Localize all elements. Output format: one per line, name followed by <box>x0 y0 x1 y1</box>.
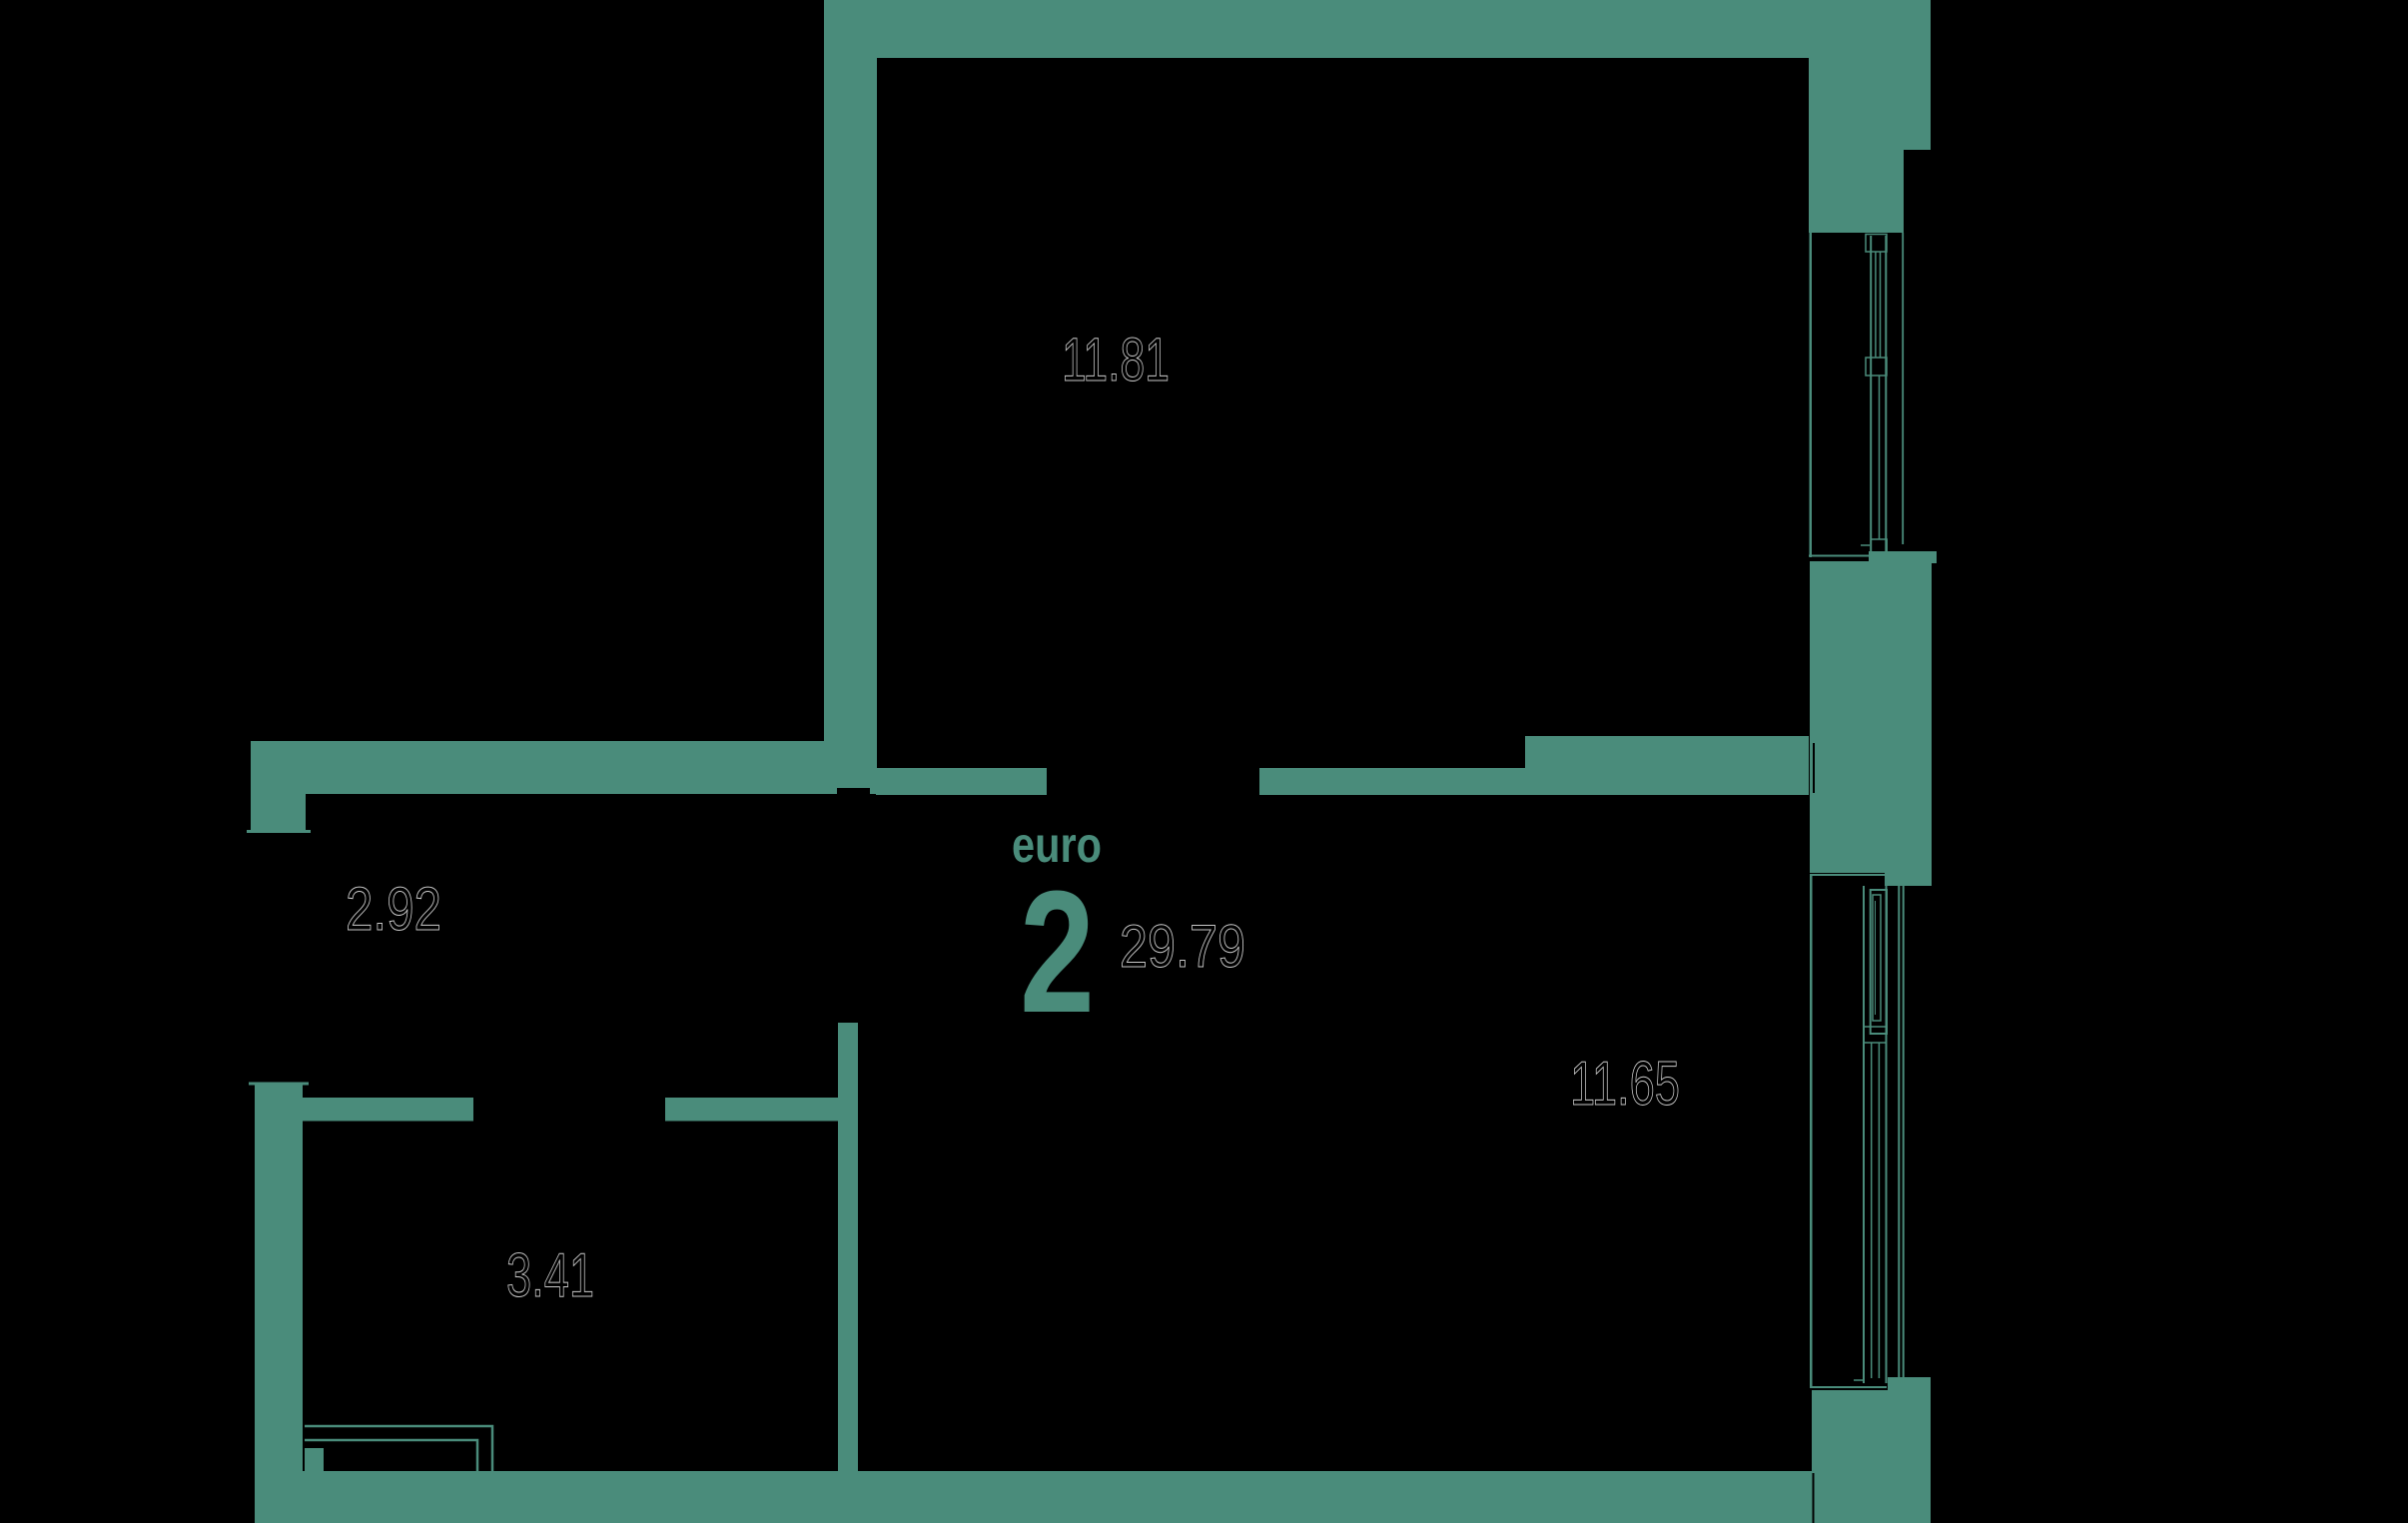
svg-text:2: 2 <box>1020 854 1095 1049</box>
svg-text:11.65: 11.65 <box>1570 1050 1680 1119</box>
svg-text:2.92: 2.92 <box>346 875 441 943</box>
svg-text:3.41: 3.41 <box>506 1241 594 1310</box>
svg-text:29.79: 29.79 <box>1120 913 1245 980</box>
svg-text:11.81: 11.81 <box>1062 326 1170 393</box>
